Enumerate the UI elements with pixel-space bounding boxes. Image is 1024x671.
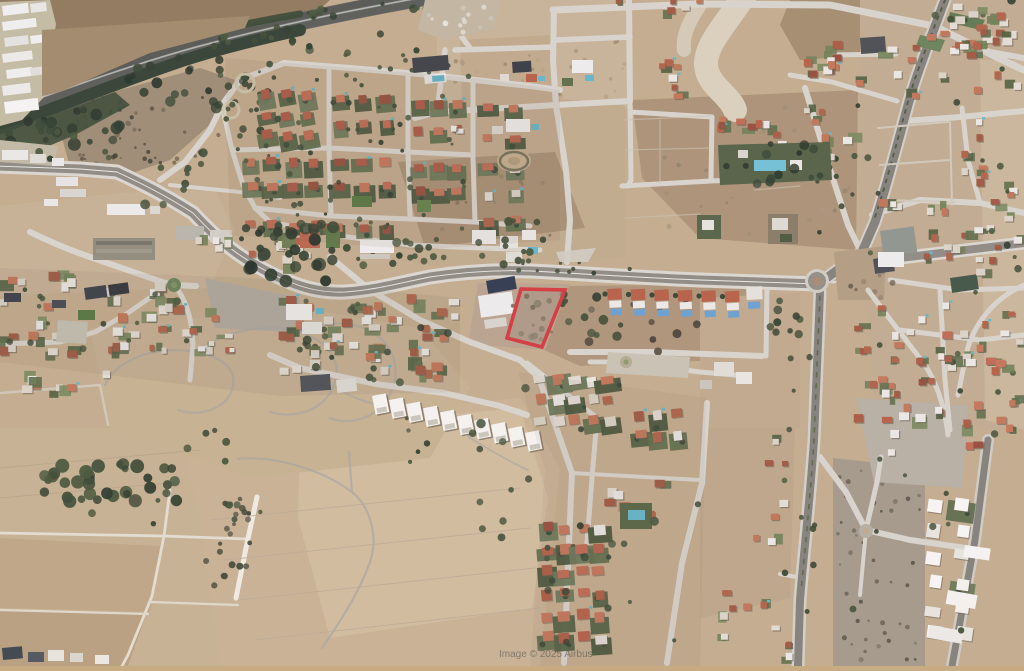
svg-text:Image © 2025 Airbus: Image © 2025 Airbus (499, 649, 593, 660)
